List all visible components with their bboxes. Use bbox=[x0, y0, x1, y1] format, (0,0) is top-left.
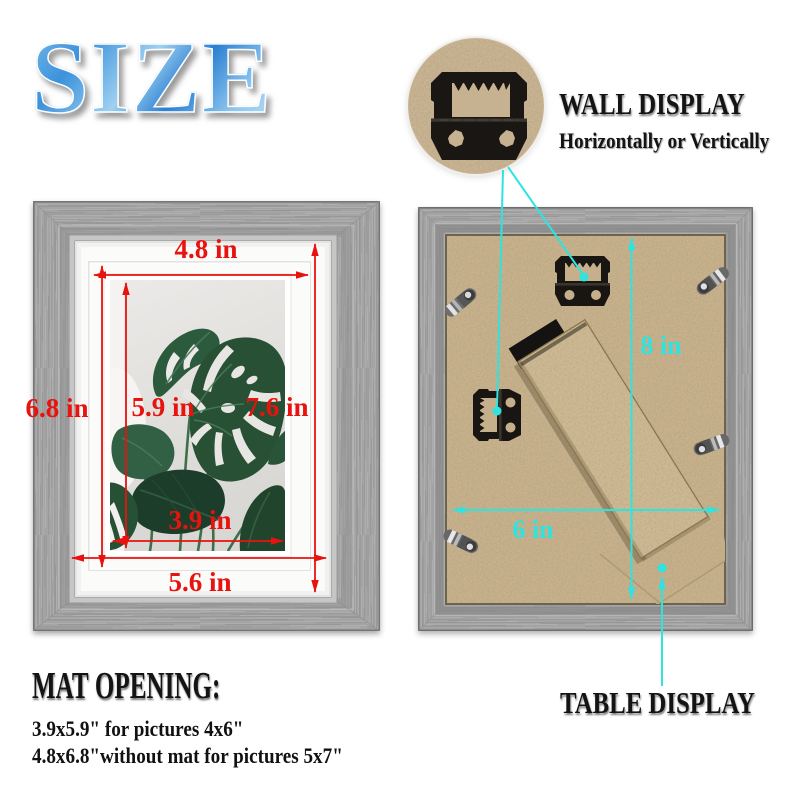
svg-text:8 in: 8 in bbox=[640, 331, 682, 360]
svg-text:6.8 in: 6.8 in bbox=[25, 393, 88, 423]
svg-text:4.8 in: 4.8 in bbox=[174, 234, 237, 264]
svg-text:6 in: 6 in bbox=[512, 515, 554, 544]
svg-text:7.6 in: 7.6 in bbox=[245, 392, 308, 422]
svg-text:3.9 in: 3.9 in bbox=[168, 505, 231, 535]
svg-text:5.9 in: 5.9 in bbox=[131, 392, 194, 422]
svg-text:5.6 in: 5.6 in bbox=[168, 567, 231, 597]
